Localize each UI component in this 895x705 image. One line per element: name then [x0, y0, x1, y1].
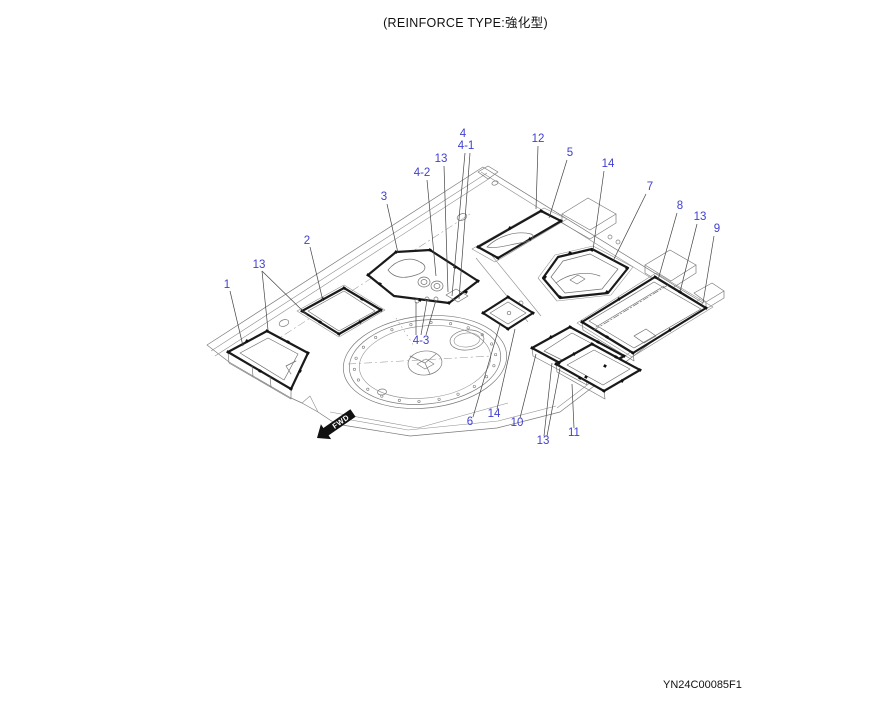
- callout-label-4: 4: [460, 128, 467, 140]
- callout-label-8: 8: [677, 200, 683, 212]
- cover-plate-3: [368, 250, 478, 303]
- ring-bolt-hole: [490, 343, 492, 345]
- callout-label-2: 2: [304, 235, 310, 247]
- leader-line: [613, 194, 646, 261]
- ring-bolt-hole: [467, 327, 469, 329]
- leader-line: [547, 368, 560, 436]
- ring-bolt-hole: [398, 399, 400, 401]
- callout-label-12: 12: [532, 133, 545, 145]
- diagram-canvas: FWD 113234-21344-112514781394-3614101311: [0, 0, 895, 705]
- ring-bolt-hole: [374, 336, 376, 338]
- ring-bolt-hole: [493, 365, 495, 367]
- parts-diagram-page: { "title": "(REINFORCE TYPE:強化型)", "draw…: [0, 0, 895, 705]
- swing-bearing-circle: [339, 308, 512, 417]
- callout-label-9: 9: [714, 223, 720, 235]
- leader-line: [658, 213, 677, 280]
- leader-line: [549, 160, 567, 218]
- callout-label-13: 13: [253, 259, 266, 271]
- cover-plate-2: [302, 288, 381, 334]
- ring-bolt-hole: [410, 323, 412, 325]
- fwd-arrow: FWD: [317, 409, 356, 439]
- leader-line: [572, 384, 574, 428]
- leader-line: [421, 300, 427, 335]
- ring-bolt-hole: [485, 376, 487, 378]
- leader-line: [703, 236, 714, 303]
- drawing-number: YN24C00085F1: [663, 679, 742, 691]
- callout-label-13: 13: [537, 435, 550, 447]
- ring-bolt-hole: [430, 321, 432, 323]
- callout-label-14: 14: [488, 408, 501, 420]
- ring-bolt-hole: [418, 400, 420, 402]
- callout-label-13: 13: [435, 153, 448, 165]
- callout-label-11: 11: [568, 427, 580, 439]
- callout-label-4-3: 4-3: [413, 335, 430, 347]
- leader-line: [520, 354, 536, 418]
- callout-label-14: 14: [602, 158, 615, 170]
- ring-bolt-hole: [449, 322, 451, 324]
- cover-plate-6: [483, 297, 533, 329]
- ring-bolt-hole: [473, 385, 475, 387]
- ring-bolt-hole: [362, 346, 364, 348]
- leader-line: [387, 204, 398, 253]
- callout-label-10: 10: [511, 417, 524, 429]
- leader-line: [426, 300, 436, 335]
- leader-line: [536, 146, 538, 209]
- leader-line: [262, 271, 268, 330]
- callout-label-13: 13: [694, 211, 707, 223]
- callout-label-4-1: 4-1: [458, 140, 475, 152]
- ring-bolt-hole: [457, 393, 459, 395]
- ring-bolt-hole: [355, 357, 357, 359]
- callout-label-6: 6: [467, 416, 473, 428]
- ring-bolt-hole: [367, 388, 369, 390]
- ring-bolt-hole: [391, 329, 393, 331]
- leader-line: [680, 224, 697, 292]
- ring-bolt-hole: [353, 368, 355, 370]
- ring-bolt-hole: [357, 379, 359, 381]
- leader-line: [473, 324, 500, 417]
- callout-label-3: 3: [381, 191, 387, 203]
- callout-label-7: 7: [647, 181, 653, 193]
- ring-bolt-hole: [438, 398, 440, 400]
- callout-label-1: 1: [224, 279, 230, 291]
- leader-line: [497, 329, 515, 409]
- cover-plate-1: [228, 331, 308, 399]
- callout-label-4-2: 4-2: [414, 167, 431, 179]
- callout-label-5: 5: [567, 147, 573, 159]
- leader-line: [262, 271, 308, 316]
- cover-plate-12-5: [478, 211, 561, 258]
- ring-bolt-hole: [494, 353, 496, 355]
- leader-line: [544, 363, 552, 436]
